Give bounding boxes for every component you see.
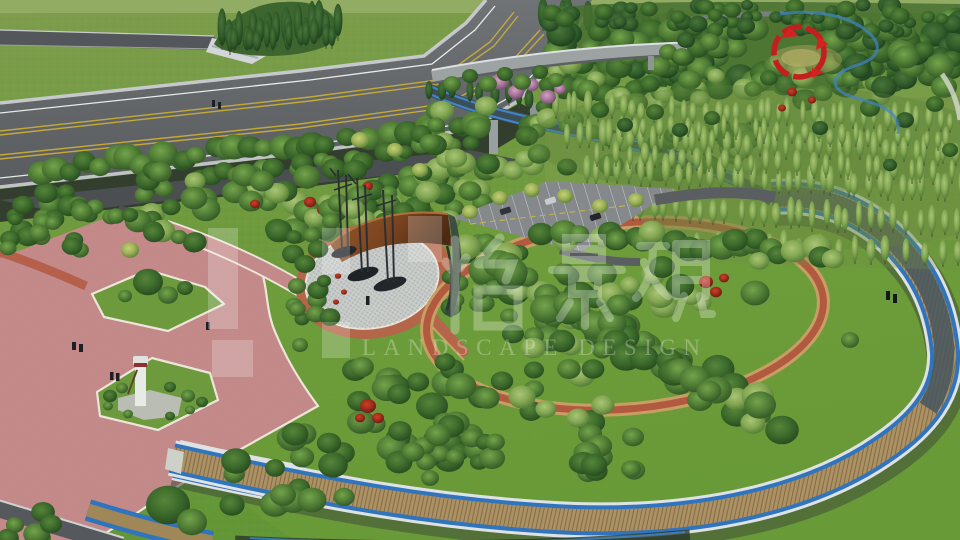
svg-text:LANDSCAPE DESIGN: LANDSCAPE DESIGN [362, 335, 708, 360]
